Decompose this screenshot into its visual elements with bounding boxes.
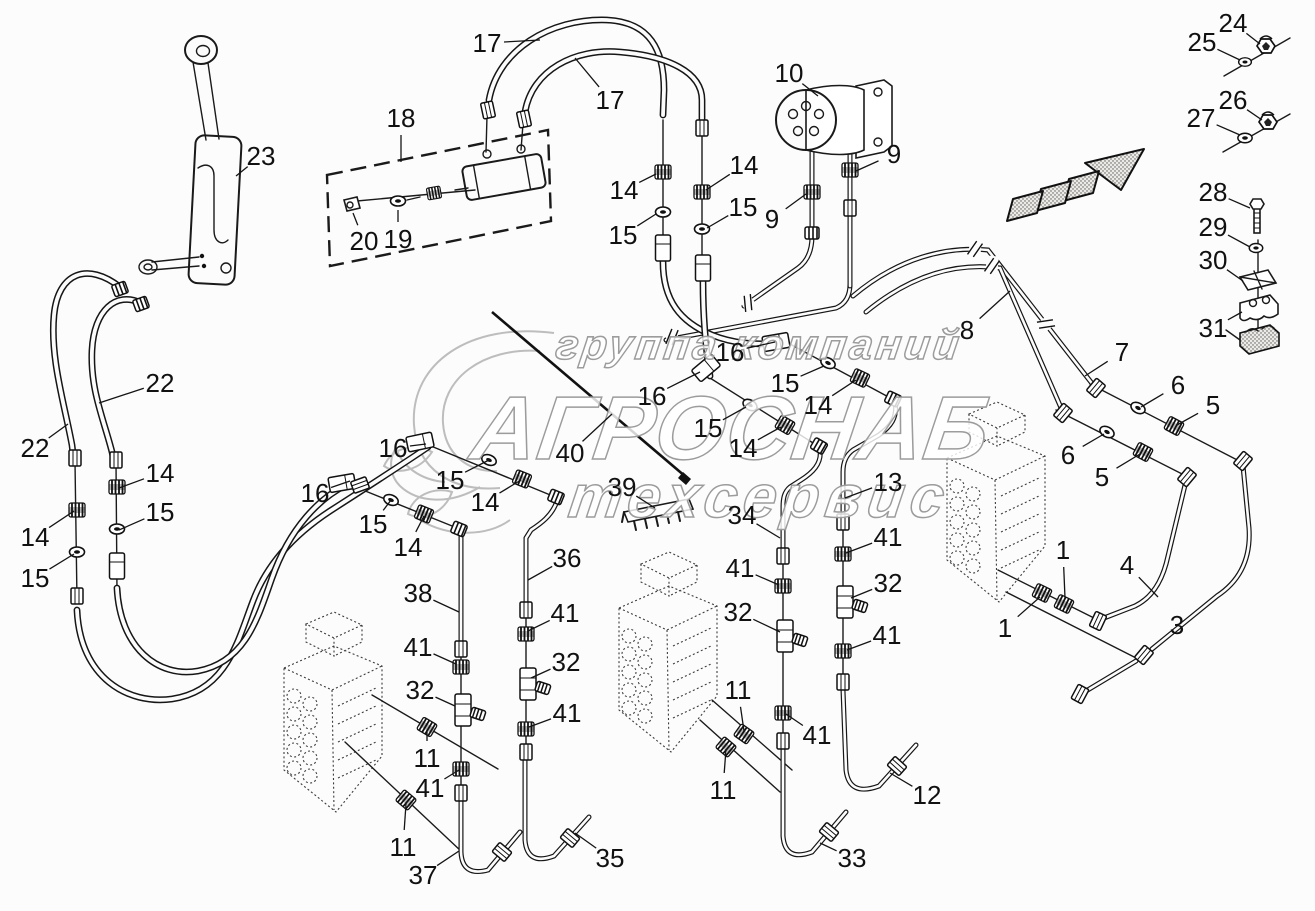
part-callout-41: 41 <box>874 524 903 550</box>
part-callout-10: 10 <box>775 60 804 86</box>
part-callout-12: 12 <box>913 782 942 808</box>
part-callout-29: 29 <box>1199 214 1228 240</box>
part-callout-22: 22 <box>146 370 175 396</box>
part-callout-32: 32 <box>406 677 435 703</box>
part-callout-31: 31 <box>1199 315 1228 341</box>
part-callout-16: 16 <box>379 435 408 461</box>
part-callout-30: 30 <box>1199 247 1228 273</box>
part-callout-35: 35 <box>596 845 625 871</box>
part-callout-7: 7 <box>1115 339 1129 365</box>
part-callout-32: 32 <box>552 649 581 675</box>
part-callout-22: 22 <box>21 435 50 461</box>
part-callout-27: 27 <box>1187 105 1216 131</box>
part-callout-19: 19 <box>384 226 413 252</box>
part-callout-26: 26 <box>1219 87 1248 113</box>
part-callout-20: 20 <box>350 228 379 254</box>
part-callout-40: 40 <box>556 440 585 466</box>
part-callout-14: 14 <box>610 177 639 203</box>
part-callout-36: 36 <box>553 545 582 571</box>
part-callout-5: 5 <box>1095 464 1109 490</box>
part-callout-32: 32 <box>874 570 903 596</box>
hydraulic-parts-diagram: группа компаний АГРОСНАБ техсервис 23171… <box>0 0 1315 911</box>
part-callout-41: 41 <box>726 555 755 581</box>
part-callout-15: 15 <box>146 499 175 525</box>
part-callout-3: 3 <box>1170 612 1184 638</box>
part-callout-41: 41 <box>404 634 433 660</box>
part-callout-5: 5 <box>1206 392 1220 418</box>
part-callout-14: 14 <box>21 524 50 550</box>
part-callout-6: 6 <box>1061 442 1075 468</box>
part-callout-34: 34 <box>728 502 757 528</box>
part-callout-9: 9 <box>887 141 901 167</box>
part-callout-11: 11 <box>414 745 441 771</box>
part-callout-14: 14 <box>804 392 833 418</box>
part-callout-8: 8 <box>960 317 974 343</box>
part-callout-41: 41 <box>551 600 580 626</box>
part-callout-25: 25 <box>1188 29 1217 55</box>
part-callout-41: 41 <box>553 700 582 726</box>
part-callout-23: 23 <box>247 143 276 169</box>
part-callout-15: 15 <box>21 565 50 591</box>
part-callout-13: 13 <box>874 469 903 495</box>
part-callout-39: 39 <box>608 474 637 500</box>
part-callout-41: 41 <box>416 775 445 801</box>
part-callout-24: 24 <box>1219 10 1248 36</box>
part-callout-6: 6 <box>1171 372 1185 398</box>
part-callout-17: 17 <box>473 30 502 56</box>
part-callout-18: 18 <box>387 105 416 131</box>
part-callout-16: 16 <box>301 480 330 506</box>
part-callout-15: 15 <box>729 194 758 220</box>
part-callout-16: 16 <box>638 383 667 409</box>
part-callout-11: 11 <box>710 777 737 803</box>
part-callout-14: 14 <box>729 435 758 461</box>
part-callout-15: 15 <box>609 222 638 248</box>
part-callout-15: 15 <box>436 467 465 493</box>
part-callout-32: 32 <box>724 599 753 625</box>
part-callout-11: 11 <box>725 677 752 703</box>
part-callout-14: 14 <box>730 152 759 178</box>
part-callout-15: 15 <box>359 511 388 537</box>
part-callout-37: 37 <box>409 862 438 888</box>
part-callout-1: 1 <box>998 615 1012 641</box>
part-callout-15: 15 <box>771 370 800 396</box>
part-callout-1: 1 <box>1056 537 1070 563</box>
part-callout-14: 14 <box>146 460 175 486</box>
part-callout-41: 41 <box>803 722 832 748</box>
part-callout-41: 41 <box>873 622 902 648</box>
part-callout-38: 38 <box>404 580 433 606</box>
part-callout-14: 14 <box>394 534 423 560</box>
part-callout-28: 28 <box>1199 179 1228 205</box>
part-callout-4: 4 <box>1120 552 1134 578</box>
part-callout-16: 16 <box>716 339 745 365</box>
part-callout-9: 9 <box>765 206 779 232</box>
part-callout-33: 33 <box>838 845 867 871</box>
part-callout-11: 11 <box>390 834 417 860</box>
part-callout-15: 15 <box>694 415 723 441</box>
part-callout-14: 14 <box>471 489 500 515</box>
part-callout-17: 17 <box>596 87 625 113</box>
callout-labels: 2317171820191099141514152425262728293031… <box>0 0 1315 911</box>
